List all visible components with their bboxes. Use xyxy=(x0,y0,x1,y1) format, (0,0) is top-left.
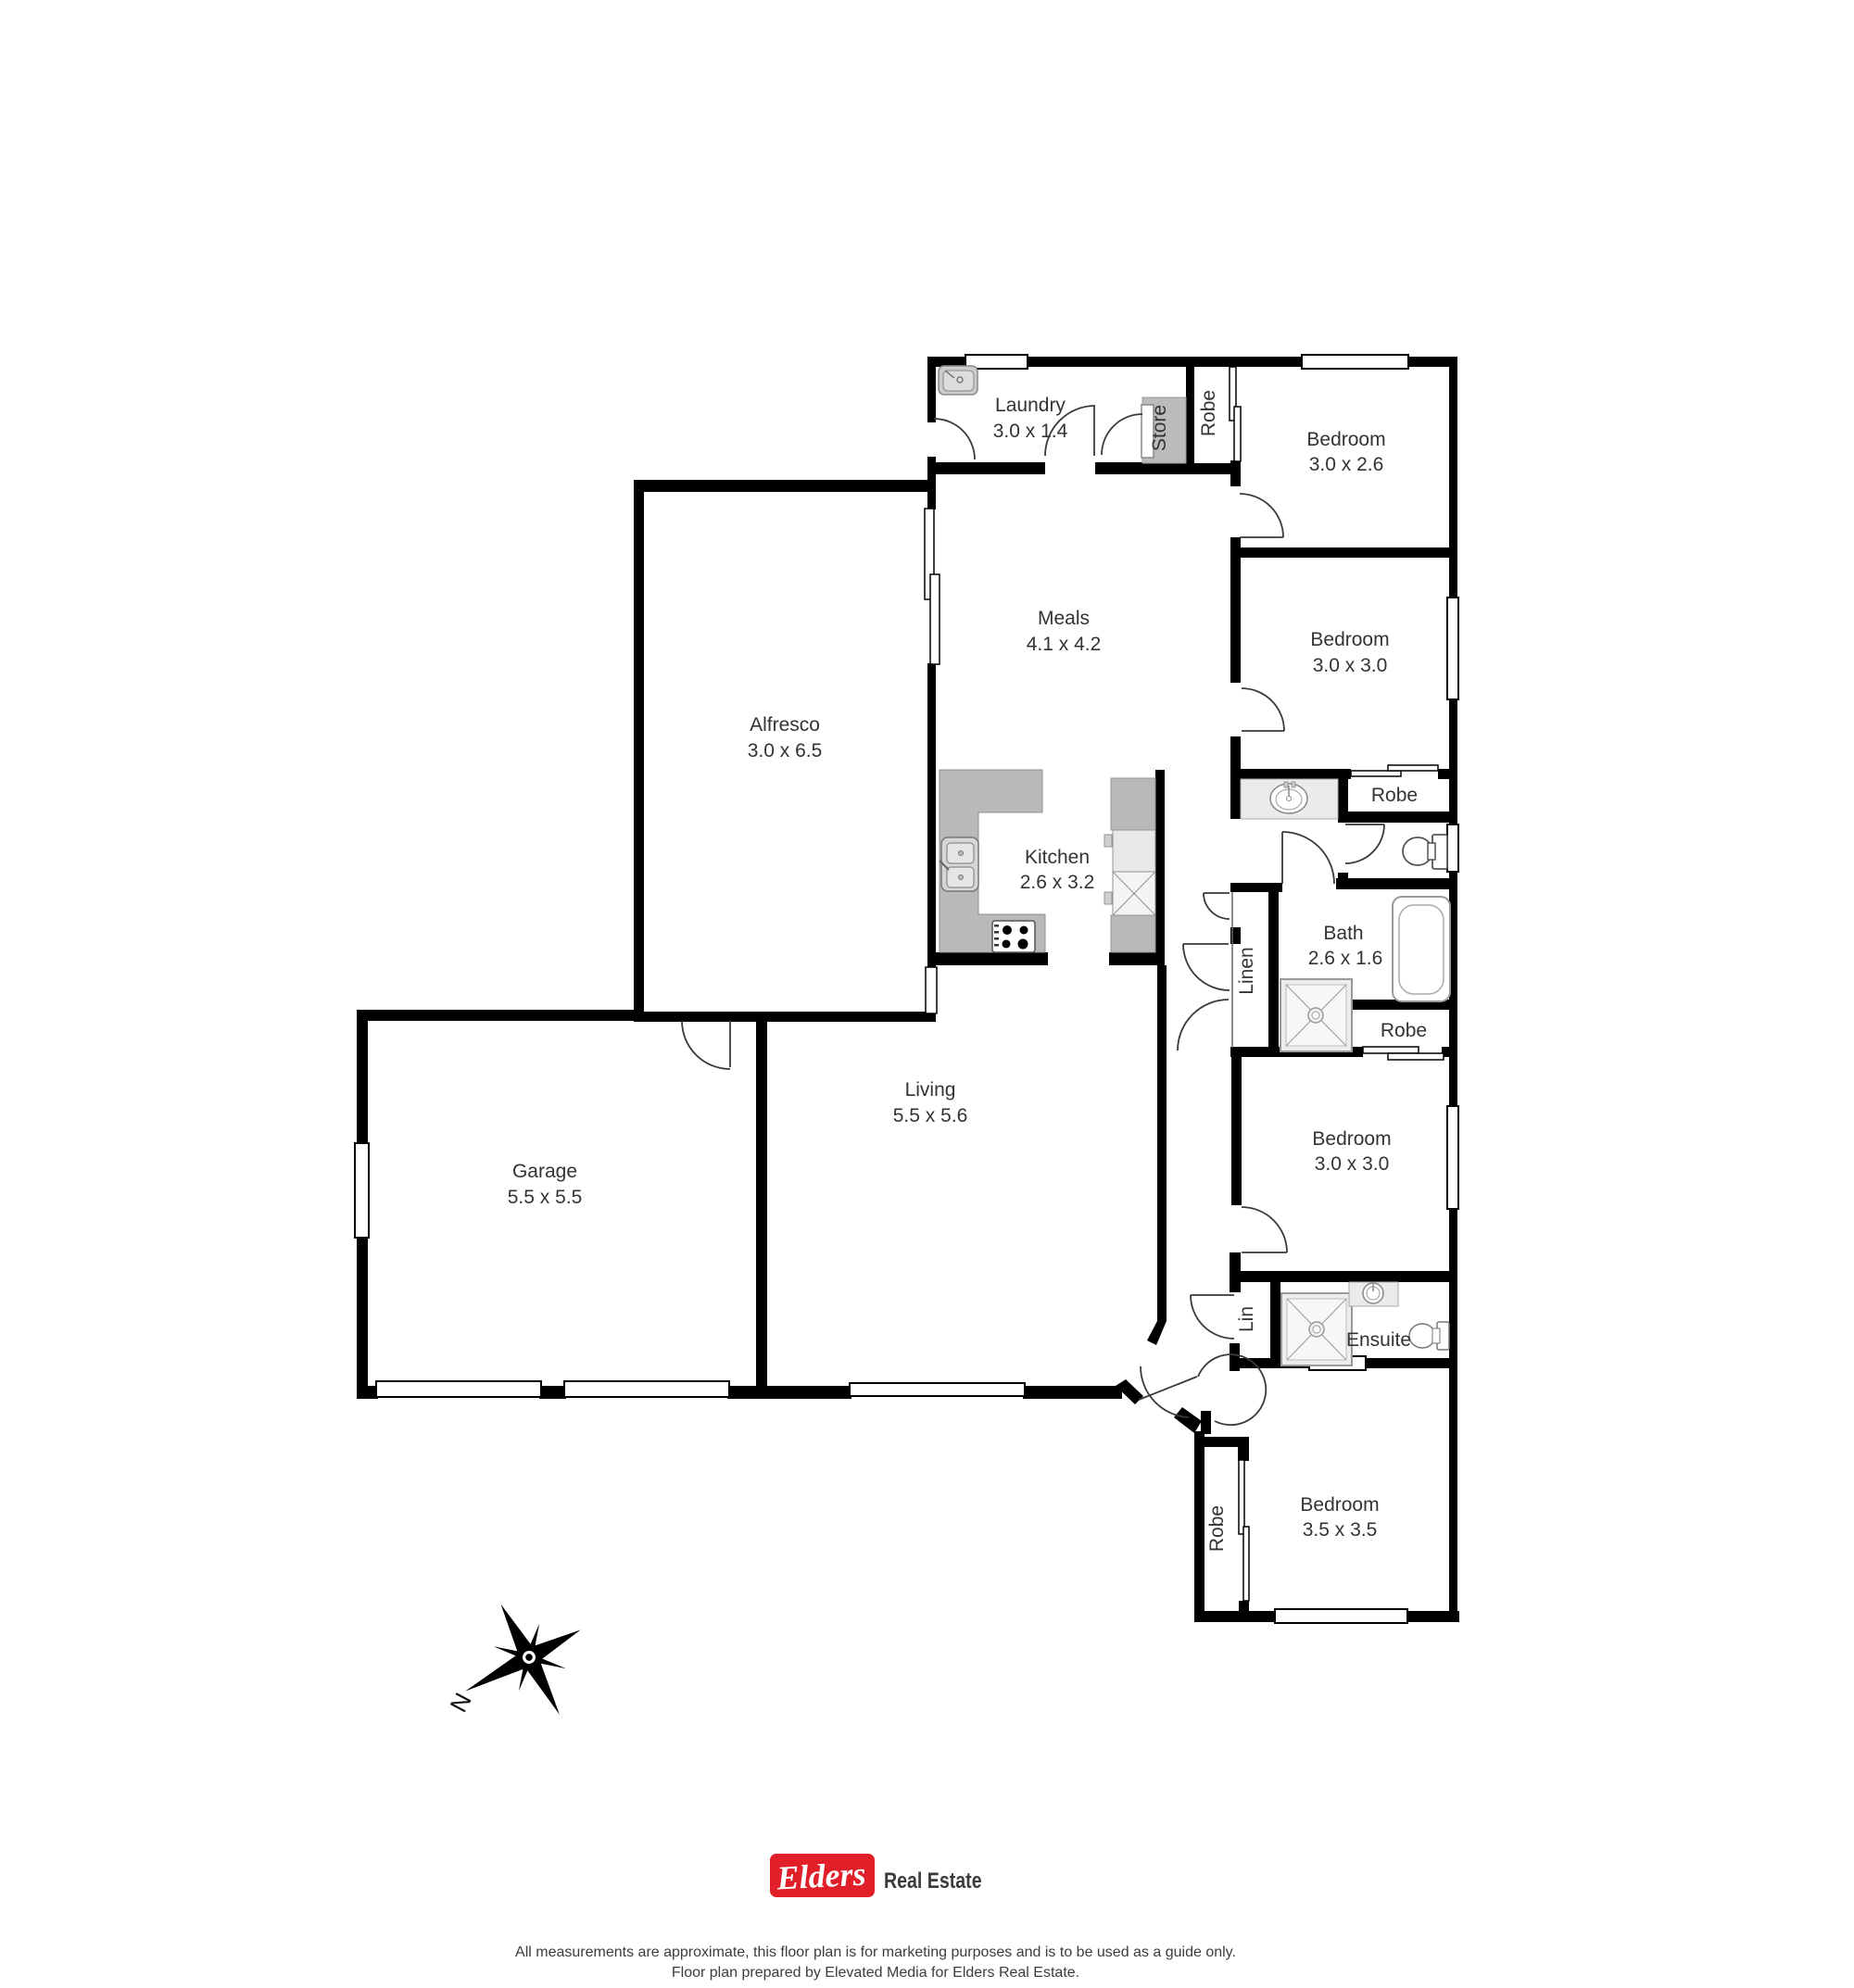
svg-text:Garage: Garage xyxy=(512,1161,577,1182)
svg-text:4.1 x 4.2: 4.1 x 4.2 xyxy=(1027,634,1102,655)
svg-text:Floor plan prepared by Elevate: Floor plan prepared by Elevated Media fo… xyxy=(672,1965,1079,1981)
svg-text:Bath: Bath xyxy=(1323,923,1363,944)
svg-text:Ensuite: Ensuite xyxy=(1346,1329,1411,1351)
svg-text:5.5 x 5.6: 5.5 x 5.6 xyxy=(893,1105,968,1126)
svg-text:Real Estate: Real Estate xyxy=(884,1868,982,1894)
svg-text:3.0 x 1.4: 3.0 x 1.4 xyxy=(993,421,1068,442)
svg-text:3.0 x 2.6: 3.0 x 2.6 xyxy=(1309,454,1384,475)
svg-text:Lin: Lin xyxy=(1236,1306,1257,1332)
svg-text:2.6 x 3.2: 2.6 x 3.2 xyxy=(1020,872,1095,893)
svg-text:Kitchen: Kitchen xyxy=(1025,847,1090,868)
svg-text:Bedroom: Bedroom xyxy=(1310,629,1389,650)
svg-text:Robe: Robe xyxy=(1198,390,1219,436)
svg-text:Store: Store xyxy=(1149,405,1170,451)
svg-text:Robe: Robe xyxy=(1381,1020,1427,1041)
svg-text:Alfresco: Alfresco xyxy=(750,714,820,736)
svg-text:3.0 x 3.0: 3.0 x 3.0 xyxy=(1313,655,1388,676)
svg-text:2.6 x 1.6: 2.6 x 1.6 xyxy=(1308,948,1383,969)
svg-text:Robe: Robe xyxy=(1206,1505,1228,1552)
svg-text:Living: Living xyxy=(905,1079,956,1101)
svg-text:Robe: Robe xyxy=(1371,785,1418,806)
svg-text:3.0 x 6.5: 3.0 x 6.5 xyxy=(748,740,823,761)
svg-text:Bedroom: Bedroom xyxy=(1306,429,1385,450)
svg-text:Bedroom: Bedroom xyxy=(1312,1128,1391,1150)
svg-text:3.5 x 3.5: 3.5 x 3.5 xyxy=(1303,1519,1378,1541)
svg-text:Bedroom: Bedroom xyxy=(1300,1494,1379,1516)
svg-text:Laundry: Laundry xyxy=(995,395,1066,416)
svg-text:Elders: Elders xyxy=(775,1856,866,1897)
svg-text:5.5 x 5.5: 5.5 x 5.5 xyxy=(508,1187,583,1208)
svg-text:All measurements are approxima: All measurements are approximate, this f… xyxy=(515,1944,1236,1960)
svg-text:Linen: Linen xyxy=(1236,947,1257,994)
svg-text:Meals: Meals xyxy=(1038,608,1090,629)
svg-text:3.0 x 3.0: 3.0 x 3.0 xyxy=(1315,1153,1390,1175)
